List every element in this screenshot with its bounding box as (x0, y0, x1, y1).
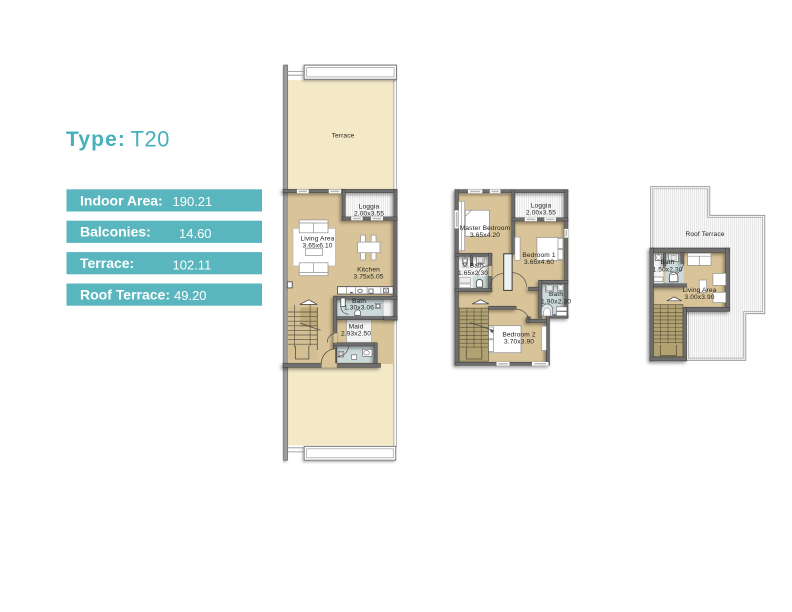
svg-text:2.00x3.55: 2.00x3.55 (354, 211, 384, 218)
svg-text:Type:: Type: (66, 128, 126, 151)
svg-text:M.Bath: M.Bath (462, 263, 484, 270)
svg-text:3.65x4.60: 3.65x4.60 (524, 259, 554, 266)
svg-text:3.75x5.05: 3.75x5.05 (353, 274, 383, 281)
svg-text:Loggia: Loggia (359, 204, 380, 211)
svg-text:Bedroom 1: Bedroom 1 (522, 252, 556, 259)
svg-text:Terrace: Terrace (332, 133, 355, 140)
svg-text:Roof Terrace: Roof Terrace (685, 231, 724, 238)
svg-text:190.21: 190.21 (173, 194, 213, 209)
svg-text:14.60: 14.60 (179, 226, 212, 241)
svg-text:Loggia: Loggia (531, 203, 552, 210)
svg-text:3.00x3.90: 3.00x3.90 (684, 294, 714, 301)
svg-text:1.50x2.30: 1.50x2.30 (652, 267, 682, 274)
svg-text:Kitchen: Kitchen (357, 267, 380, 274)
svg-text:2.00x3.55: 2.00x3.55 (526, 210, 556, 217)
svg-text:Maid: Maid (349, 324, 364, 331)
svg-text:1.90x2.30: 1.90x2.30 (541, 299, 571, 306)
svg-text:Living Area: Living Area (301, 235, 335, 242)
svg-text:Master Bedroom: Master Bedroom (460, 225, 511, 232)
svg-text:T20: T20 (131, 126, 170, 151)
svg-text:Bedroom 2: Bedroom 2 (502, 332, 536, 339)
svg-text:Balconies:: Balconies: (80, 224, 151, 240)
svg-text:Living Area: Living Area (683, 287, 717, 294)
svg-text:Bath: Bath (660, 259, 674, 266)
svg-text:Bath: Bath (549, 291, 563, 298)
svg-text:2.93x2.50: 2.93x2.50 (341, 331, 371, 338)
svg-text:Indoor Area:: Indoor Area: (80, 192, 163, 208)
svg-text:3.70x3.90: 3.70x3.90 (504, 339, 534, 346)
svg-text:102.11: 102.11 (173, 257, 212, 272)
svg-text:Roof Terrace:: Roof Terrace: (80, 287, 170, 303)
svg-text:49.20: 49.20 (174, 288, 207, 303)
svg-text:Terrace:: Terrace: (80, 255, 134, 271)
svg-text:3.65x6.10: 3.65x6.10 (302, 242, 332, 249)
svg-text:1.65x2.30: 1.65x2.30 (458, 270, 488, 277)
svg-text:3.65x4.20: 3.65x4.20 (470, 232, 500, 239)
